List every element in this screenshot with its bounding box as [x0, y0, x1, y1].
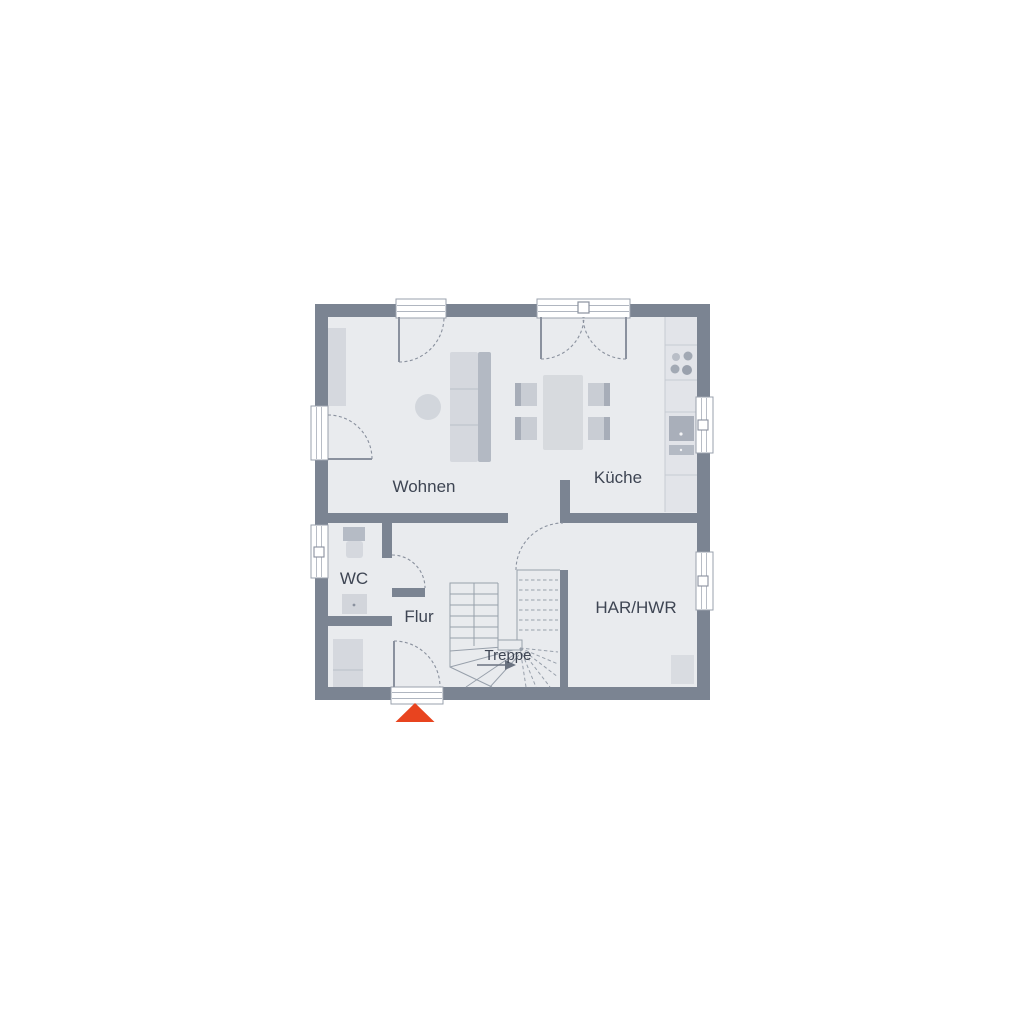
- room-label-wc: WC: [340, 569, 368, 588]
- dining-chair: [515, 417, 537, 440]
- kitchen-sink-icon: [669, 416, 694, 455]
- room-label-har-hwr: HAR/HWR: [595, 598, 676, 617]
- door-handle-icon: [578, 302, 589, 313]
- window-handle-icon: [698, 576, 708, 586]
- sofa: [450, 352, 491, 462]
- floor-area: [328, 317, 697, 687]
- dining-table: [543, 375, 583, 450]
- dining-chair: [588, 417, 610, 440]
- window-handle-icon: [698, 420, 708, 430]
- window-kitchen: [696, 397, 713, 453]
- wc-sink-icon: [342, 594, 367, 614]
- floor-plan-page: Wohnen Küche WC Flur Treppe HAR/HWR: [0, 0, 1024, 1024]
- french-window-left: [311, 406, 328, 460]
- entrance-marker-triangle-icon: [396, 703, 435, 722]
- coffee-table: [415, 394, 441, 420]
- entrance-door: [391, 687, 443, 704]
- window-handle-icon: [314, 547, 324, 557]
- dining-chair: [588, 383, 610, 406]
- room-label-flur: Flur: [404, 607, 434, 626]
- double-patio-door: [537, 299, 630, 318]
- window-wc: [311, 525, 328, 578]
- terrace-door: [396, 299, 446, 318]
- window-har-hwr: [696, 552, 713, 610]
- dining-chair: [515, 383, 537, 406]
- floor-plan-drawing: Wohnen Küche WC Flur Treppe HAR/HWR: [0, 0, 1024, 1024]
- room-label-kueche: Küche: [594, 468, 642, 487]
- room-label-wohnen: Wohnen: [392, 477, 455, 496]
- wardrobe: [333, 639, 363, 687]
- room-label-treppe: Treppe: [485, 647, 532, 664]
- utility-unit: [671, 655, 694, 684]
- kitchen-counter: [665, 317, 697, 512]
- sideboard: [328, 328, 346, 406]
